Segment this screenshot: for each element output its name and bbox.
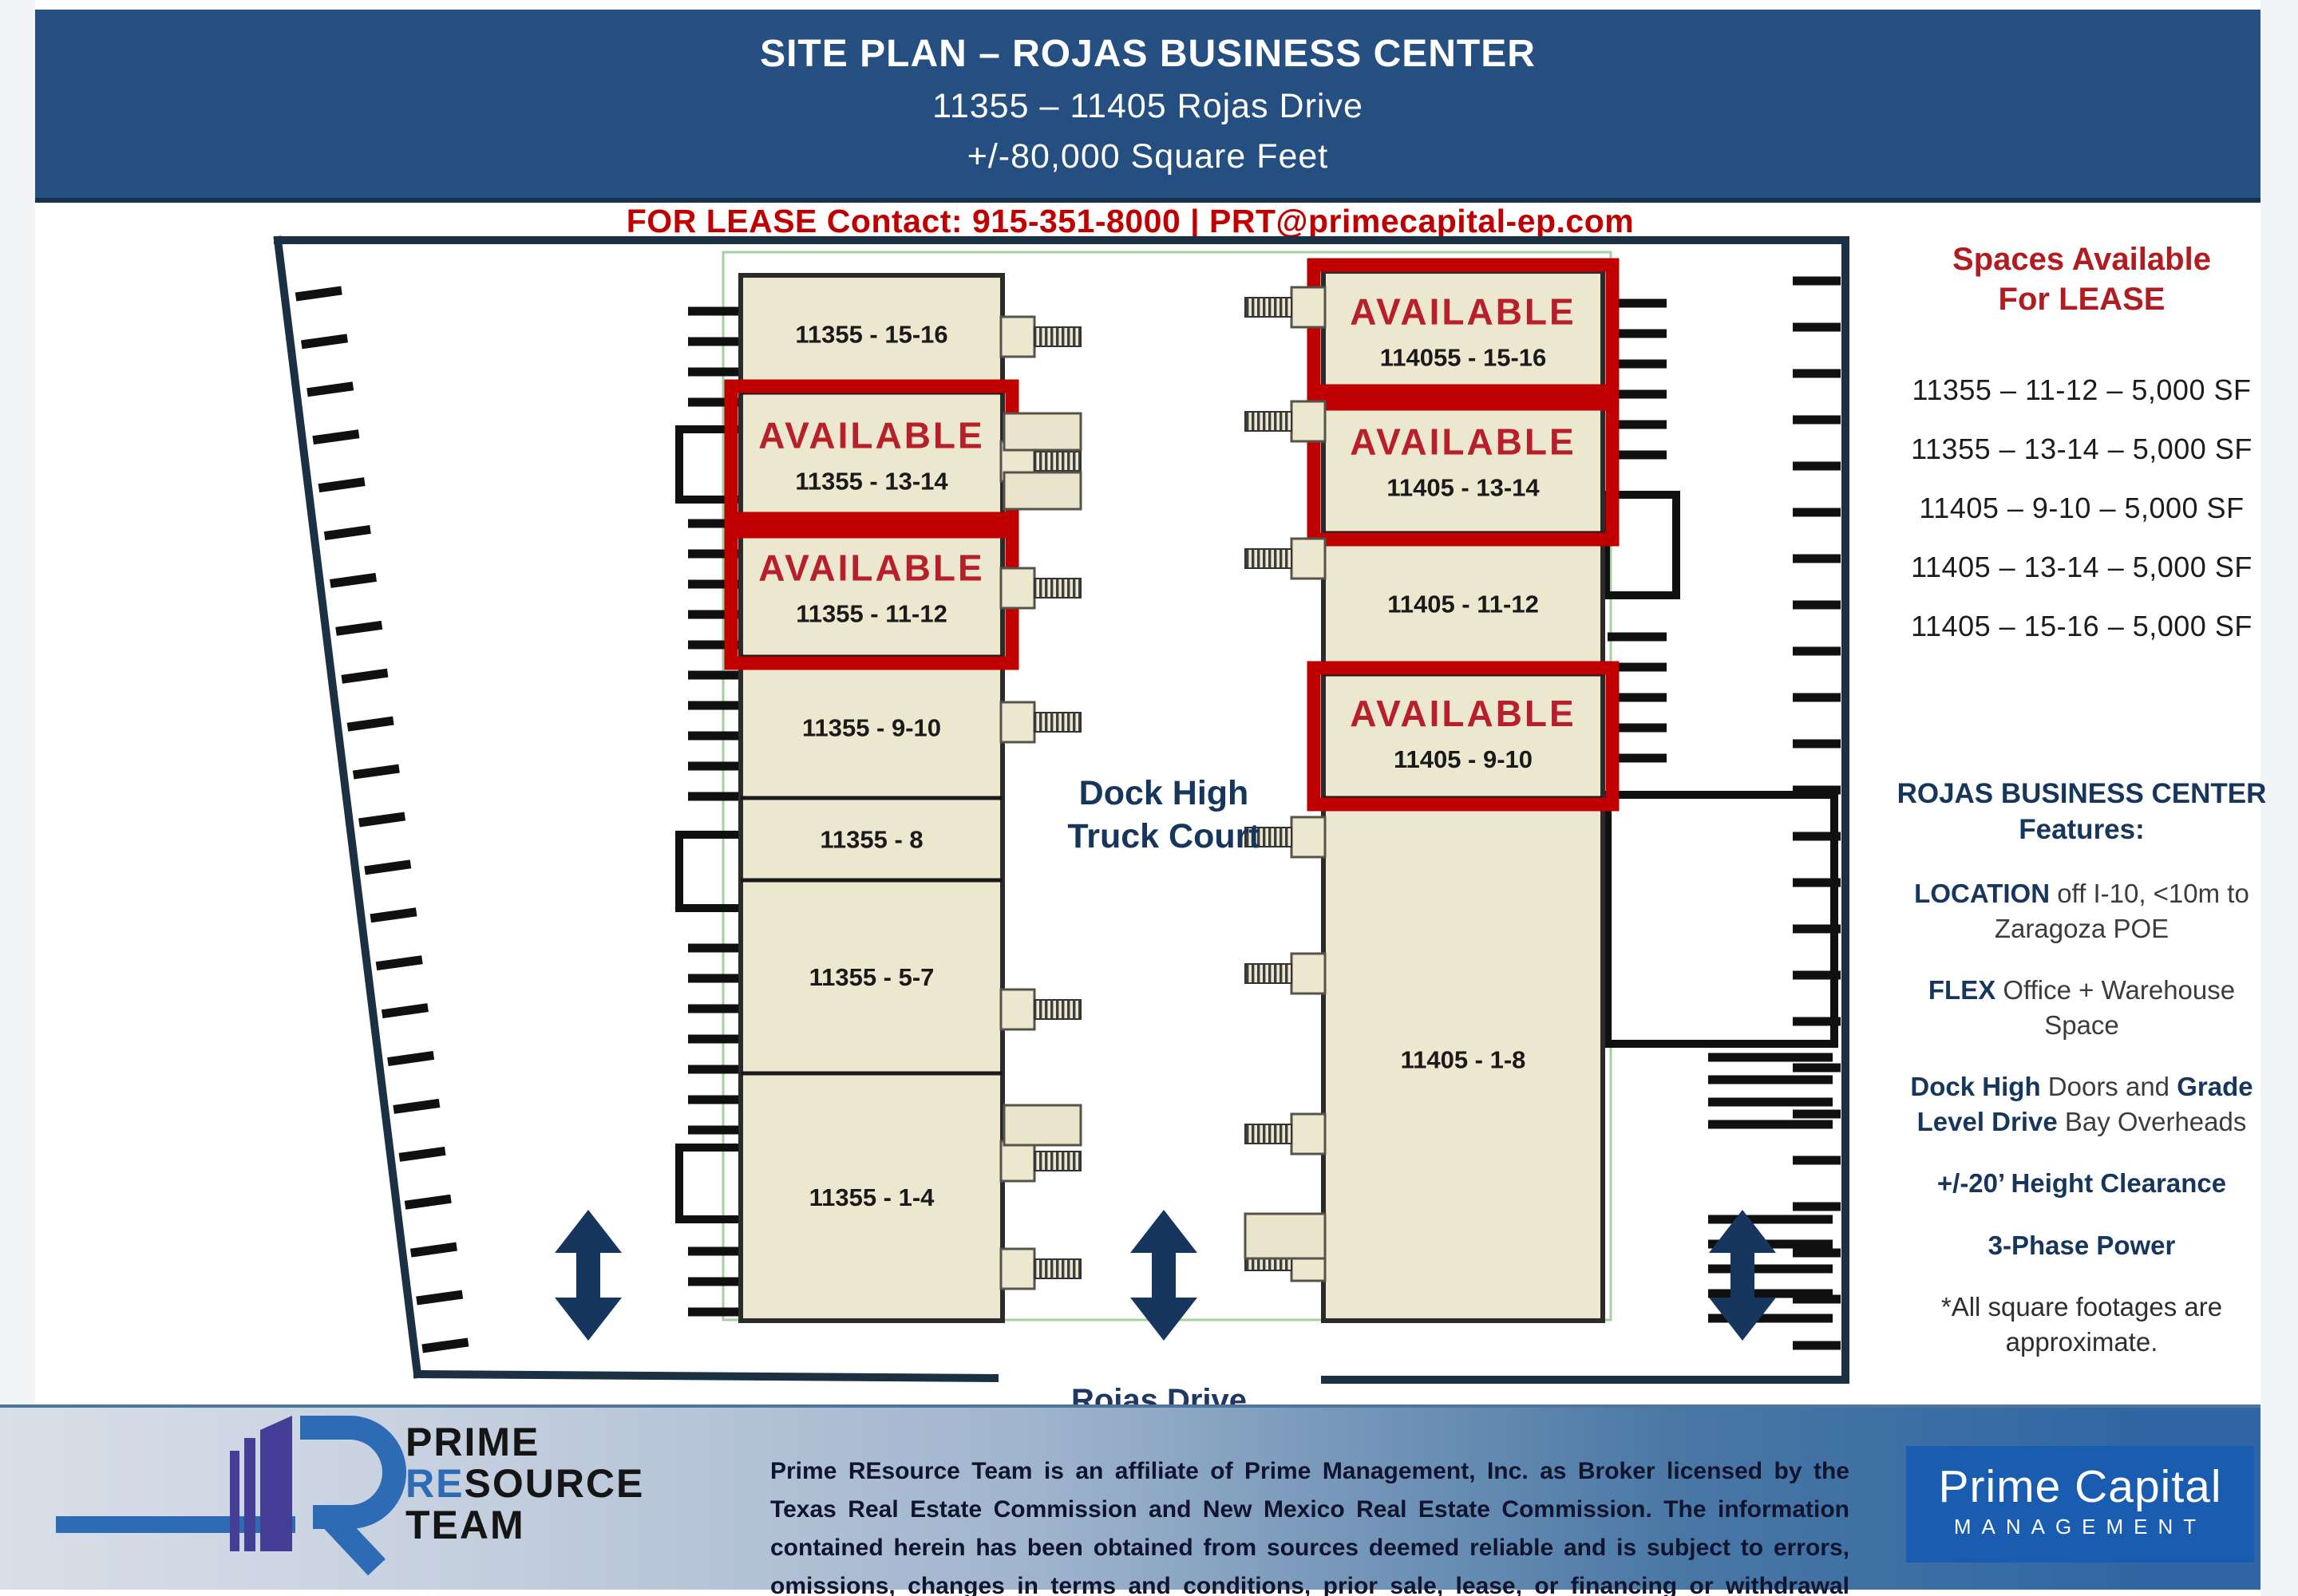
- unit-number-label: 11405 - 9-10: [1394, 745, 1533, 773]
- dock-ramp-icon: [1034, 713, 1081, 732]
- available-label: AVAILABLE: [1350, 693, 1576, 734]
- parking-stall-tick: [688, 1005, 739, 1013]
- parking-stall-tick: [1708, 1098, 1833, 1107]
- dock-ramp-icon: [1034, 1000, 1081, 1019]
- dock-ramp-icon: [1034, 452, 1081, 471]
- features-title: ROJAS BUSINESS CENTER Features:: [1884, 776, 2280, 847]
- door-bay-outline: [679, 1148, 743, 1219]
- parking-stall-tick: [364, 859, 411, 875]
- parking-stall-tick: [1793, 416, 1841, 425]
- unit-number-label: 11405 - 1-8: [1401, 1046, 1526, 1074]
- parking-stall-tick: [1708, 1120, 1833, 1129]
- features-list: LOCATION off I-10, <10m to Zaragoza POEF…: [1884, 876, 2280, 1262]
- dock-ramp-icon: [1034, 579, 1081, 598]
- feature-item: +/-20’ Height Clearance: [1884, 1166, 2280, 1201]
- parking-stall-tick: [1793, 647, 1841, 656]
- parking-stall-tick: [1793, 369, 1841, 378]
- spaces-available-list: 11355 – 11-12 – 5,000 SF11355 – 13-14 – …: [1884, 361, 2280, 656]
- parking-stall-tick: [1793, 508, 1841, 517]
- parking-stall-tick: [1708, 1215, 1833, 1224]
- dock-door-icon: [1001, 317, 1034, 357]
- parking-stall-tick: [330, 573, 377, 588]
- parking-stall-tick: [312, 429, 359, 444]
- unit-number-label: 11355 - 5-7: [809, 963, 935, 991]
- brand-line-2: RESOURCE: [405, 1461, 644, 1506]
- parking-stall-tick: [1793, 323, 1841, 332]
- door-bay-outline: [679, 835, 743, 908]
- parking-stall-tick: [688, 671, 739, 680]
- two-way-arrow-icon: [555, 1210, 622, 1341]
- parking-stall-tick: [387, 1051, 434, 1066]
- parking-stall-tick: [688, 732, 739, 741]
- broker-disclaimer: Prime REsource Team is an affiliate of P…: [770, 1452, 1849, 1596]
- features-footnote: *All square footages are approximate.: [1884, 1290, 2280, 1359]
- dock-ramp-icon: [1245, 1124, 1291, 1144]
- dock-door-icon: [1001, 1249, 1034, 1289]
- parking-stall-tick: [301, 334, 348, 349]
- canopy-rect: [1004, 1105, 1081, 1145]
- available-label: AVAILABLE: [758, 415, 984, 456]
- dock-door-icon: [1291, 954, 1325, 994]
- parking-stall-tick: [1793, 1064, 1841, 1073]
- parking-stall-tick: [393, 1099, 440, 1114]
- dock-door-icon: [1291, 401, 1325, 441]
- dock-ramp-icon: [1245, 549, 1291, 568]
- property-boundary-line: [278, 240, 417, 1374]
- parking-stall-tick: [341, 669, 388, 684]
- unit-number-label: 11355 - 9-10: [802, 714, 941, 742]
- parking-stall-tick: [1793, 1110, 1841, 1119]
- logo-bar: [56, 1516, 295, 1533]
- parking-stall-tick: [376, 955, 423, 970]
- dock-ramp-icon: [1245, 964, 1291, 983]
- parking-stall-tick: [688, 1065, 739, 1074]
- dock-door-icon: [1291, 1114, 1325, 1154]
- available-label: AVAILABLE: [1350, 421, 1576, 462]
- parking-stall-tick: [688, 944, 739, 953]
- parking-stall-tick: [1793, 693, 1841, 702]
- brand-line-1: PRIME: [405, 1420, 540, 1464]
- features-block: ROJAS BUSINESS CENTER Features: LOCATION…: [1884, 776, 2280, 1359]
- feature-item: Dock High Doors and Grade Level Drive Ba…: [1884, 1069, 2280, 1139]
- dock-door-icon: [1291, 287, 1325, 327]
- parking-stall-tick: [1708, 1053, 1833, 1062]
- available-label: AVAILABLE: [758, 547, 984, 588]
- parking-stall-tick: [1708, 1076, 1833, 1084]
- parking-stall-tick: [399, 1147, 446, 1162]
- dock-ramp-icon: [1034, 327, 1081, 346]
- spaces-available-title: Spaces Available For LEASE: [1884, 239, 2280, 319]
- parking-stall-tick: [295, 286, 342, 301]
- parking-stall-tick: [416, 1290, 463, 1306]
- parking-stall-tick: [688, 1308, 739, 1317]
- truck-court-label: Dock High: [1079, 774, 1249, 812]
- parking-stall-tick: [688, 974, 739, 983]
- prime-capital-logo: Prime Capital MANAGEMENT: [1906, 1446, 2254, 1562]
- dock-door-icon: [1001, 1141, 1034, 1181]
- dock-ramp-icon: [1245, 298, 1291, 317]
- parking-stall-tick: [688, 307, 739, 316]
- parking-stall-tick: [688, 701, 739, 710]
- flyer-page: SITE PLAN – ROJAS BUSINESS CENTER 11355 …: [0, 0, 2298, 1596]
- parking-stall-tick: [1708, 1265, 1833, 1274]
- canopy-rect: [1004, 472, 1081, 509]
- logo-r-icon: [300, 1428, 394, 1567]
- parking-stall-tick: [1793, 555, 1841, 563]
- parking-stall-tick: [421, 1337, 469, 1353]
- parking-stall-tick: [1793, 1295, 1841, 1304]
- parking-stall-tick: [1793, 601, 1841, 610]
- canopy-rect: [1245, 1214, 1325, 1258]
- parking-stall-tick: [688, 762, 739, 771]
- parking-stall-tick: [353, 764, 400, 780]
- parking-stall-tick: [1793, 1341, 1841, 1350]
- unit-number-label: 114055 - 15-16: [1380, 343, 1547, 371]
- right-info-panel: Spaces Available For LEASE 11355 – 11-12…: [1884, 239, 2280, 1359]
- feature-item: LOCATION off I-10, <10m to Zaragoza POE: [1884, 876, 2280, 946]
- parking-stall-tick: [688, 792, 739, 801]
- parking-stall-tick: [1793, 1156, 1841, 1165]
- parking-stall-tick: [1793, 1203, 1841, 1211]
- parking-stall-tick: [335, 621, 382, 636]
- parking-stall-tick: [1608, 633, 1667, 642]
- parking-stall-tick: [347, 717, 394, 732]
- truck-court-label: Truck Court: [1067, 817, 1260, 855]
- logo-building-icon: [230, 1416, 292, 1551]
- parking-stall-tick: [318, 477, 366, 492]
- feature-item: FLEX Office + Warehouse Space: [1884, 973, 2280, 1042]
- space-available-item: 11355 – 13-14 – 5,000 SF: [1884, 420, 2280, 479]
- dock-door-icon: [1001, 990, 1034, 1029]
- parking-stall-tick: [688, 1247, 739, 1256]
- parking-stall-tick: [688, 338, 739, 346]
- dock-door-icon: [1291, 817, 1325, 857]
- parking-stall-tick: [370, 907, 417, 922]
- unit-number-label: 11405 - 11-12: [1387, 591, 1539, 618]
- space-available-item: 11355 – 11-12 – 5,000 SF: [1884, 361, 2280, 420]
- parking-stall-tick: [405, 1195, 452, 1210]
- parking-stall-tick: [688, 368, 739, 377]
- parking-stall-tick: [1793, 740, 1841, 749]
- parking-stall-tick: [688, 1096, 739, 1104]
- dock-door-icon: [1291, 539, 1325, 579]
- dock-door-icon: [1001, 702, 1034, 742]
- prime-capital-management: MANAGEMENT: [1906, 1515, 2254, 1539]
- dock-ramp-icon: [1245, 412, 1291, 431]
- prime-capital-name: Prime Capital: [1906, 1460, 2254, 1513]
- parking-stall-tick: [688, 1278, 739, 1286]
- parking-stall-tick: [324, 525, 371, 540]
- prime-resource-team-logo: PRIME RESOURCE TEAM: [48, 1414, 734, 1582]
- dock-ramp-icon: [1034, 1259, 1081, 1278]
- property-boundary-line: [417, 1374, 995, 1378]
- brand-line-3: TEAM: [405, 1503, 525, 1547]
- unit-number-label: 11355 - 1-4: [809, 1183, 935, 1211]
- dock-door-icon: [1001, 568, 1034, 608]
- parking-stall-tick: [1793, 277, 1841, 286]
- parking-stall-tick: [1793, 1249, 1841, 1258]
- unit-number-label: 11405 - 13-14: [1386, 473, 1540, 501]
- parking-stall-tick: [358, 812, 405, 827]
- parking-stall-tick: [382, 1003, 429, 1018]
- parking-stall-tick: [688, 1035, 739, 1044]
- unit-number-label: 11355 - 8: [820, 826, 923, 854]
- unit-number-label: 11355 - 15-16: [795, 321, 947, 349]
- available-label: AVAILABLE: [1350, 290, 1576, 332]
- space-available-item: 11405 – 15-16 – 5,000 SF: [1884, 597, 2280, 656]
- space-available-item: 11405 – 9-10 – 5,000 SF: [1884, 479, 2280, 538]
- canopy-rect: [1004, 413, 1081, 450]
- parking-stall-tick: [307, 381, 354, 397]
- parking-stall-tick: [1793, 462, 1841, 471]
- parking-stall-tick: [688, 1126, 739, 1135]
- unit-number-label: 11355 - 11-12: [796, 599, 947, 627]
- unit-number-label: 11355 - 13-14: [795, 468, 948, 496]
- feature-item: 3-Phase Power: [1884, 1228, 2280, 1263]
- parking-stall-tick: [410, 1242, 457, 1258]
- dock-ramp-icon: [1034, 1152, 1081, 1171]
- space-available-item: 11405 – 13-14 – 5,000 SF: [1884, 538, 2280, 597]
